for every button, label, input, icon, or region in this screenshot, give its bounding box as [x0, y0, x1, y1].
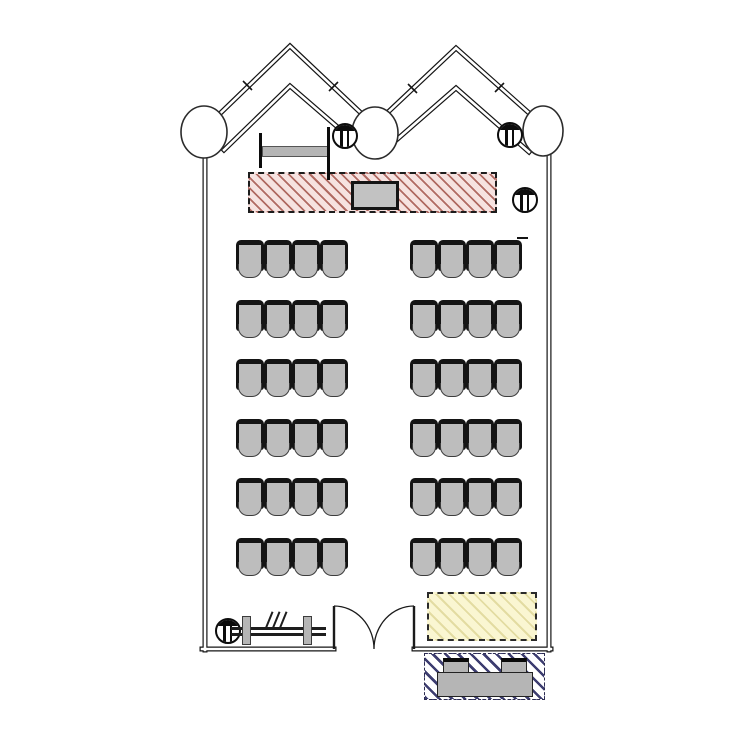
chair-block — [236, 240, 348, 271]
chair — [236, 240, 264, 271]
chair — [264, 359, 292, 390]
column-cap — [512, 187, 538, 195]
chair — [292, 419, 320, 450]
chair — [320, 538, 348, 569]
chair — [466, 240, 494, 271]
chair — [494, 538, 522, 569]
chair — [236, 300, 264, 331]
chair-block — [410, 419, 522, 450]
chair — [494, 300, 522, 331]
door-swing-arcs — [334, 606, 414, 649]
chair — [466, 538, 494, 569]
chair-block — [236, 300, 348, 331]
wall-table-end — [259, 133, 262, 168]
chair-block — [410, 478, 522, 509]
lectern-table — [351, 181, 399, 210]
chair — [494, 240, 522, 271]
chair — [438, 359, 466, 390]
chair — [466, 359, 494, 390]
round-column-left — [181, 106, 227, 158]
chair — [292, 538, 320, 569]
chair-block — [236, 478, 348, 509]
chair — [466, 300, 494, 331]
chair — [410, 538, 438, 569]
column-symbol — [332, 123, 358, 149]
column-cap — [215, 618, 241, 626]
chair — [410, 240, 438, 271]
chair — [264, 300, 292, 331]
chair — [438, 240, 466, 271]
chair — [494, 478, 522, 509]
chair — [264, 478, 292, 509]
chair-block — [410, 300, 522, 331]
round-column-right — [523, 106, 563, 156]
walls-svg — [0, 0, 750, 750]
chair — [320, 359, 348, 390]
chair — [320, 478, 348, 509]
column-cap — [332, 123, 358, 131]
chair — [494, 359, 522, 390]
wall-table-end — [327, 127, 330, 180]
chair — [292, 478, 320, 509]
chair — [438, 419, 466, 450]
chair — [292, 300, 320, 331]
wall-table — [262, 146, 328, 157]
chair — [264, 240, 292, 271]
chair — [264, 538, 292, 569]
column-symbol — [512, 187, 538, 213]
coat-rack-post — [242, 616, 251, 645]
chair — [292, 240, 320, 271]
chair — [236, 419, 264, 450]
round-column-center — [352, 107, 398, 159]
chair — [466, 478, 494, 509]
chair — [236, 359, 264, 390]
console-desk — [437, 672, 533, 697]
carpet-zone — [427, 592, 537, 641]
chair — [410, 419, 438, 450]
chair — [438, 478, 466, 509]
chair — [264, 419, 292, 450]
column-cap — [497, 122, 523, 130]
chair — [292, 359, 320, 390]
chair — [236, 538, 264, 569]
chair-block — [410, 240, 522, 271]
chair-block — [236, 359, 348, 390]
floor-plan — [0, 0, 750, 750]
chair — [410, 359, 438, 390]
chair — [236, 478, 264, 509]
chair — [410, 300, 438, 331]
column-symbol — [497, 122, 523, 148]
chair-block — [236, 419, 348, 450]
chair — [320, 300, 348, 331]
double-door — [334, 606, 414, 649]
chair — [438, 538, 466, 569]
chair — [494, 419, 522, 450]
chair — [320, 240, 348, 271]
column-symbol — [215, 618, 241, 644]
chair — [320, 419, 348, 450]
chair — [438, 300, 466, 331]
chair-block — [410, 538, 522, 569]
coat-rack-post — [303, 616, 312, 645]
chair — [466, 419, 494, 450]
chair — [410, 478, 438, 509]
chair-block — [236, 538, 348, 569]
chair-block — [410, 359, 522, 390]
